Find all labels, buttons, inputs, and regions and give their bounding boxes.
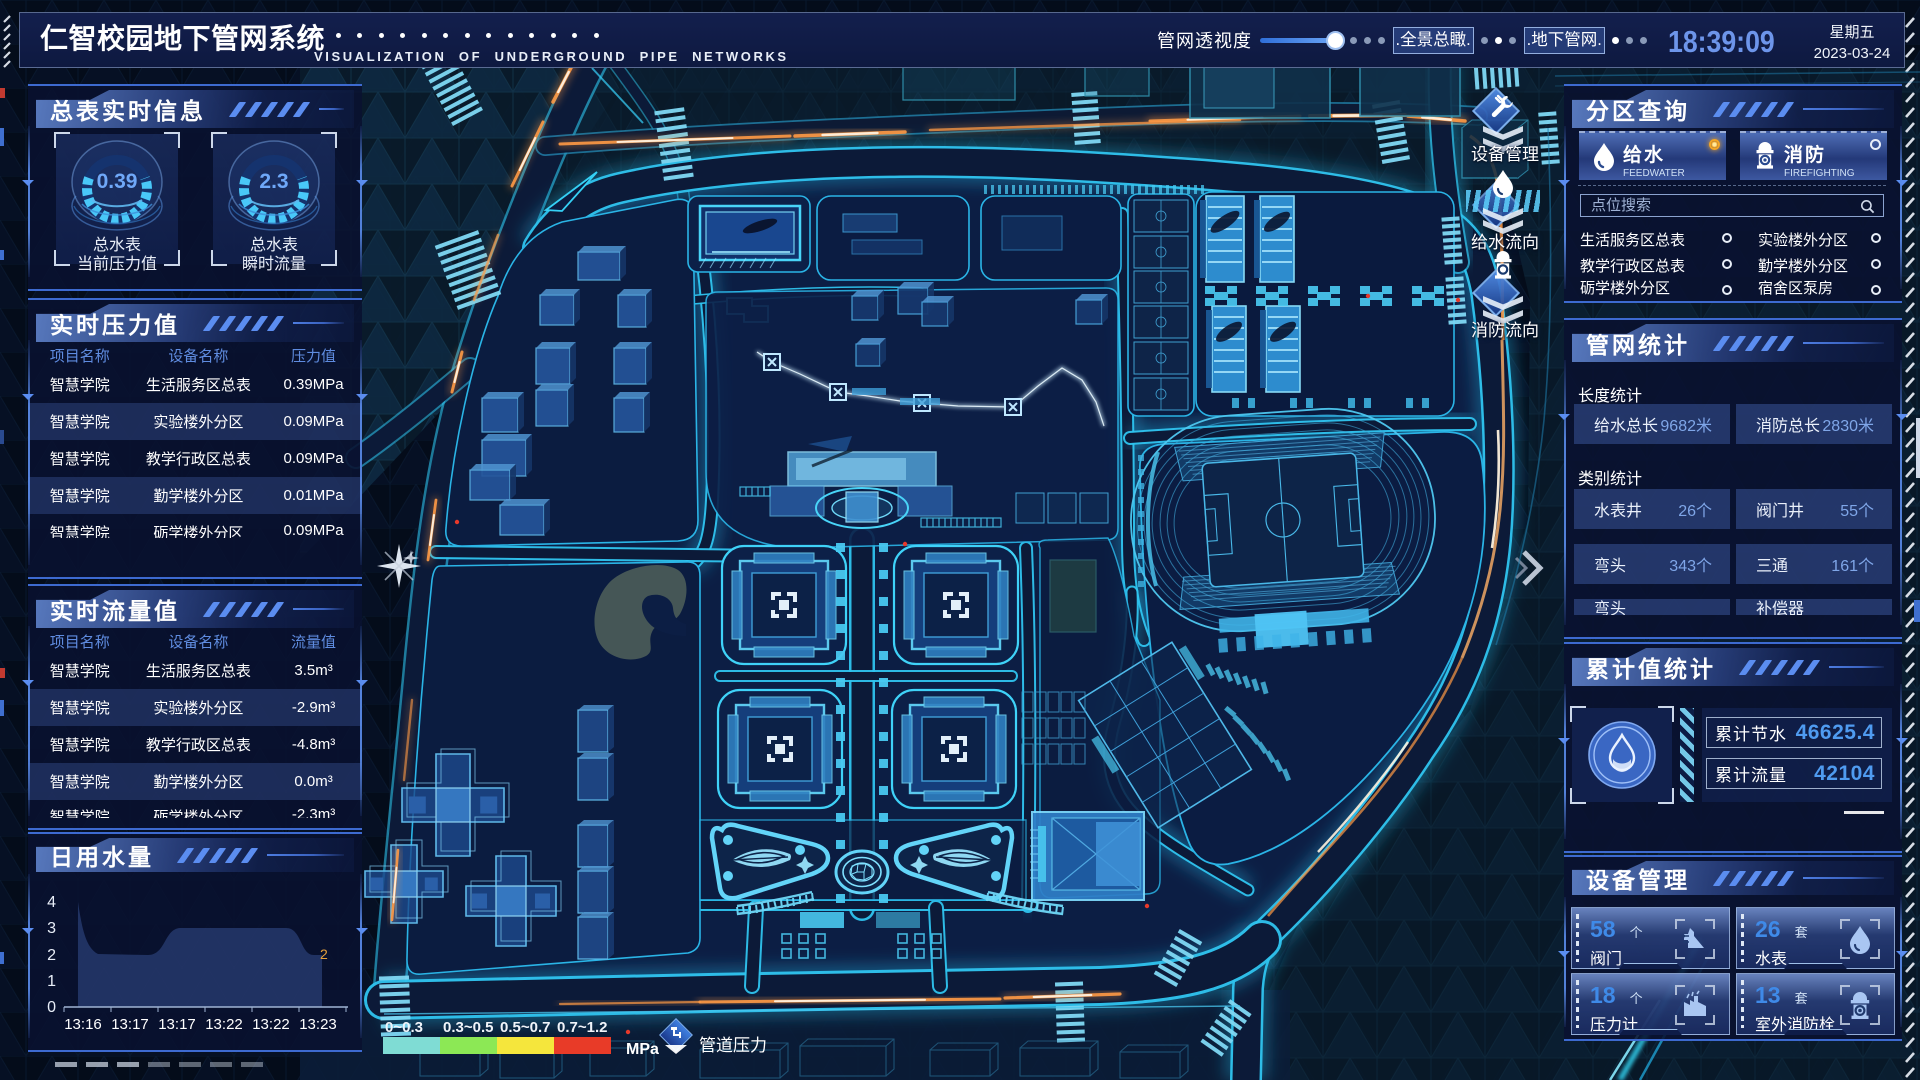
svg-text:13:23: 13:23 [299, 1016, 337, 1033]
svg-text:0: 0 [47, 999, 56, 1016]
svg-text:3: 3 [47, 920, 56, 937]
svg-text:13:22: 13:22 [205, 1016, 243, 1033]
svg-text:2.3: 2.3 [259, 170, 288, 193]
svg-text:13:17: 13:17 [158, 1016, 196, 1033]
svg-text:2: 2 [47, 947, 56, 964]
svg-text:1: 1 [47, 973, 56, 990]
svg-text:13:22: 13:22 [252, 1016, 290, 1033]
svg-text:13:16: 13:16 [64, 1016, 102, 1033]
svg-text:13:17: 13:17 [111, 1016, 149, 1033]
svg-text:2: 2 [320, 946, 328, 962]
svg-text:4: 4 [47, 894, 56, 911]
svg-text:0.39: 0.39 [97, 170, 138, 193]
